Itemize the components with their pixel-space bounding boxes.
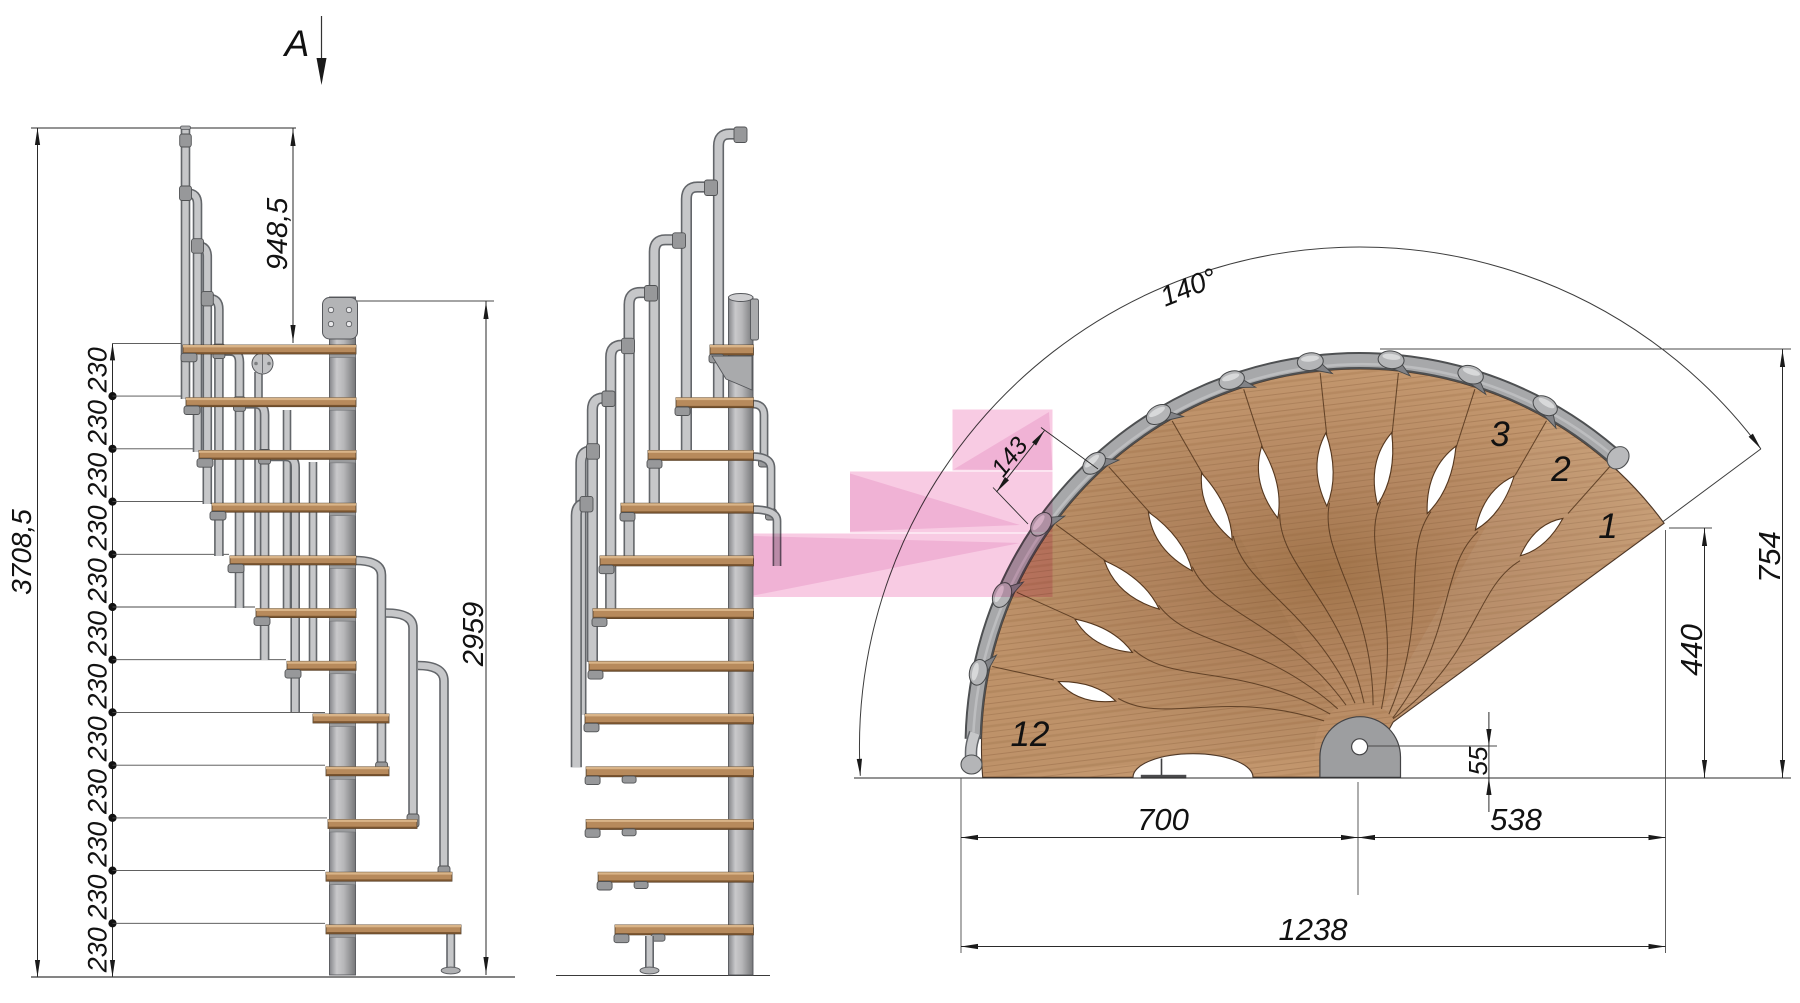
svg-text:3: 3 bbox=[1490, 415, 1510, 454]
svg-text:3708,5: 3708,5 bbox=[6, 509, 37, 595]
svg-text:230: 230 bbox=[83, 505, 113, 551]
svg-text:230: 230 bbox=[83, 822, 113, 868]
svg-text:2: 2 bbox=[1550, 450, 1570, 489]
svg-text:230: 230 bbox=[83, 347, 113, 393]
svg-text:12: 12 bbox=[1011, 715, 1050, 754]
svg-text:700: 700 bbox=[1137, 802, 1189, 837]
svg-text:230: 230 bbox=[83, 611, 113, 657]
svg-text:230: 230 bbox=[83, 400, 113, 446]
svg-text:538: 538 bbox=[1490, 802, 1542, 837]
svg-text:1: 1 bbox=[1598, 507, 1617, 546]
svg-text:230: 230 bbox=[83, 927, 113, 973]
svg-text:1238: 1238 bbox=[1279, 912, 1349, 947]
svg-text:2959: 2959 bbox=[458, 602, 490, 668]
svg-text:230: 230 bbox=[83, 558, 113, 604]
svg-text:230: 230 bbox=[83, 664, 113, 710]
svg-text:948,5: 948,5 bbox=[262, 197, 294, 270]
svg-text:230: 230 bbox=[83, 716, 113, 762]
svg-text:55: 55 bbox=[1463, 746, 1493, 775]
svg-text:230: 230 bbox=[83, 874, 113, 920]
svg-text:754: 754 bbox=[1752, 531, 1787, 583]
svg-text:230: 230 bbox=[83, 453, 113, 499]
svg-text:230: 230 bbox=[83, 769, 113, 815]
svg-text:440: 440 bbox=[1674, 624, 1709, 676]
svg-text:A: A bbox=[283, 23, 310, 64]
